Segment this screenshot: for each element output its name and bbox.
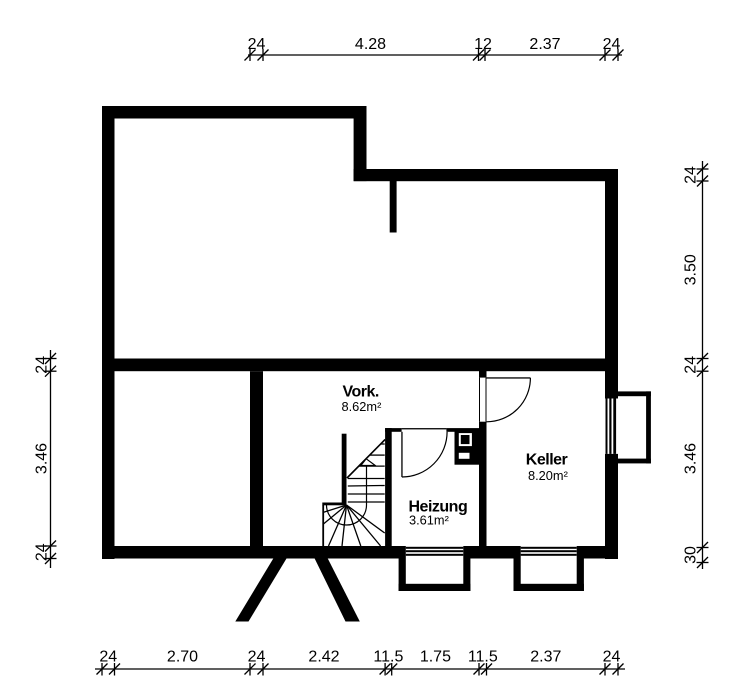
svg-text:2.42: 2.42 (308, 649, 339, 666)
svg-text:12: 12 (474, 36, 492, 53)
svg-text:24: 24 (603, 649, 621, 666)
svg-text:2.37: 2.37 (529, 36, 560, 53)
svg-text:24: 24 (683, 356, 700, 374)
svg-text:11.5: 11.5 (468, 649, 498, 666)
svg-text:Keller: Keller (526, 452, 568, 469)
svg-text:24: 24 (603, 36, 621, 53)
svg-text:3.46: 3.46 (34, 443, 51, 474)
svg-text:24: 24 (99, 649, 117, 666)
svg-text:24: 24 (248, 36, 266, 53)
svg-text:30: 30 (683, 546, 700, 564)
svg-text:8.62m²: 8.62m² (342, 399, 383, 414)
svg-text:24: 24 (34, 356, 51, 374)
svg-text:3.50: 3.50 (683, 254, 700, 285)
svg-text:8.20m²: 8.20m² (528, 468, 569, 483)
svg-text:3.61m²: 3.61m² (409, 513, 450, 528)
svg-text:4.28: 4.28 (355, 36, 386, 53)
svg-text:3.46: 3.46 (683, 443, 700, 474)
svg-text:24: 24 (248, 649, 266, 666)
svg-text:2.70: 2.70 (167, 649, 198, 666)
svg-text:24: 24 (683, 166, 700, 184)
svg-text:2.37: 2.37 (530, 649, 561, 666)
svg-text:24: 24 (34, 543, 51, 561)
svg-text:Vork.: Vork. (343, 384, 379, 401)
svg-text:1.75: 1.75 (420, 649, 451, 666)
svg-text:11.5: 11.5 (373, 649, 403, 666)
